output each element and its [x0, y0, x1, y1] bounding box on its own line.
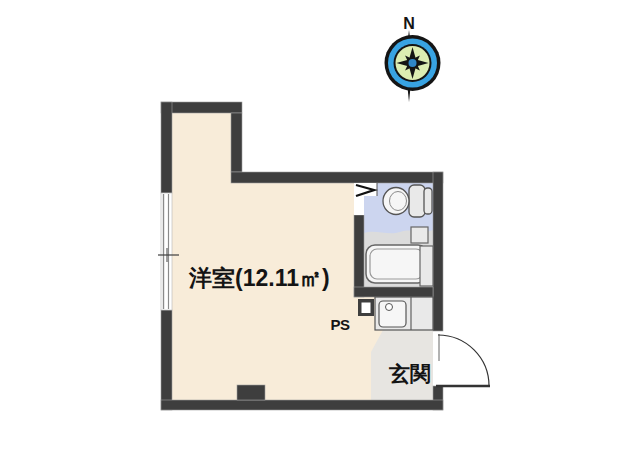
wall-bottom	[161, 400, 443, 410]
wall-step-top	[231, 172, 443, 183]
wall-pillar	[237, 385, 265, 400]
wall-left-lower	[161, 310, 172, 410]
wall-toilet-left	[354, 215, 364, 297]
sink-faucet	[386, 304, 393, 311]
compass-center-dot	[409, 59, 417, 67]
wall-top	[161, 102, 242, 113]
sink-icon	[375, 297, 433, 330]
wall-left-upper	[161, 102, 172, 193]
wall-bath-bottom	[354, 287, 433, 297]
floor-plan-canvas: N	[0, 0, 640, 470]
ps-label: PS	[330, 316, 350, 333]
compass: N	[385, 15, 441, 102]
ps-box	[358, 299, 374, 316]
floor-plan-page: N	[0, 0, 640, 470]
wall-protrusion-right	[231, 113, 242, 172]
door-swing-arc	[438, 335, 489, 386]
bathtub-icon	[366, 245, 427, 283]
wall-right-upper	[433, 172, 443, 331]
entrance-label: 玄関	[388, 362, 431, 385]
room-label: 洋室(12.11㎡)	[188, 265, 330, 291]
north-label: N	[403, 15, 415, 32]
entrance-door-arc	[436, 334, 490, 386]
sink-basin	[379, 301, 406, 327]
